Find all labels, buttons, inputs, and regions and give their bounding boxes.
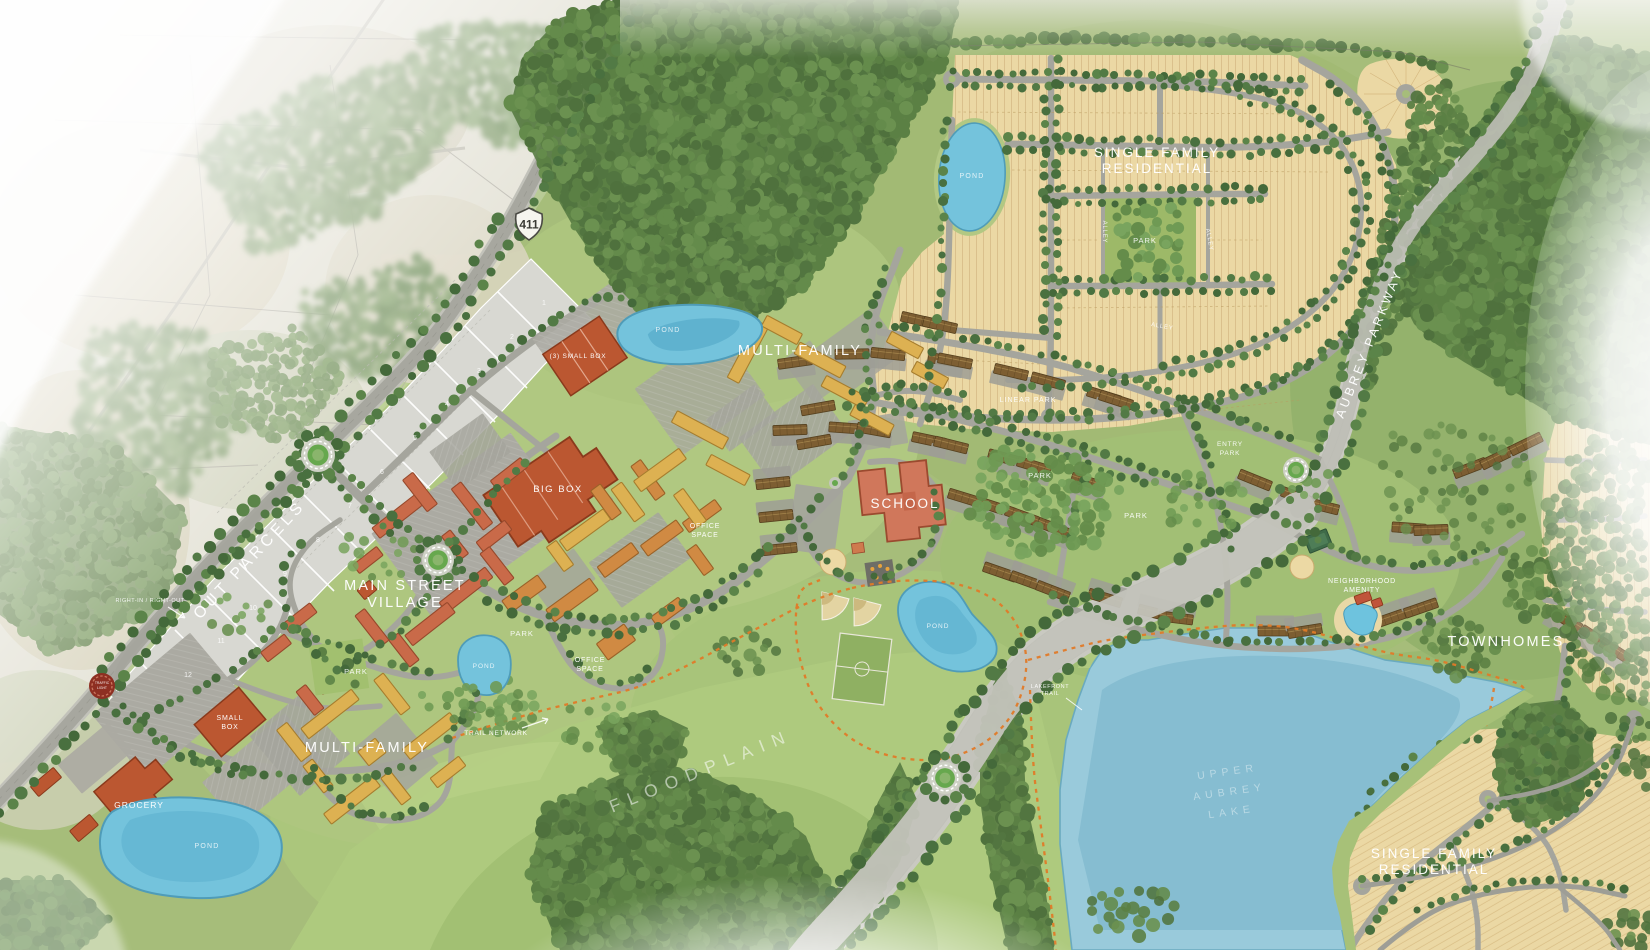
svg-text:RESIDENTIAL: RESIDENTIAL	[1102, 161, 1213, 176]
svg-text:BOX: BOX	[221, 724, 238, 731]
svg-text:OFFICE: OFFICE	[690, 523, 720, 530]
svg-text:AMENITY: AMENITY	[1344, 587, 1381, 594]
svg-text:5: 5	[413, 435, 417, 442]
svg-text:PARK: PARK	[510, 629, 534, 638]
svg-text:PARK: PARK	[344, 667, 368, 676]
svg-text:4: 4	[445, 401, 449, 408]
svg-text:1: 1	[542, 300, 546, 307]
svg-text:8: 8	[316, 537, 320, 544]
svg-text:POND: POND	[655, 327, 680, 334]
svg-text:POND: POND	[959, 173, 984, 180]
svg-text:ALLEY: ALLEY	[1101, 221, 1107, 244]
svg-text:MAIN STREET: MAIN STREET	[344, 578, 466, 594]
svg-text:6: 6	[380, 469, 384, 476]
svg-text:NEIGHBORHOOD: NEIGHBORHOOD	[1328, 578, 1396, 585]
svg-text:SINGLE FAMILY: SINGLE FAMILY	[1094, 145, 1220, 160]
svg-text:9: 9	[283, 571, 287, 578]
svg-text:10: 10	[249, 605, 257, 612]
svg-text:LAKEFRONT: LAKEFRONT	[1031, 684, 1069, 690]
svg-text:SCHOOL: SCHOOL	[870, 496, 939, 511]
svg-text:11: 11	[217, 638, 224, 645]
svg-text:TRAIL: TRAIL	[1041, 691, 1060, 697]
svg-text:POND: POND	[194, 843, 219, 850]
svg-text:POND: POND	[473, 663, 496, 670]
svg-text:SINGLE FAMILY: SINGLE FAMILY	[1371, 846, 1497, 861]
svg-text:TRAFFIC: TRAFFIC	[95, 681, 110, 685]
svg-text:PARK: PARK	[1220, 450, 1240, 457]
svg-text:12: 12	[184, 672, 192, 679]
svg-text:7: 7	[348, 503, 352, 510]
svg-text:RESIDENTIAL: RESIDENTIAL	[1379, 862, 1490, 877]
svg-text:SMALL: SMALL	[217, 715, 244, 722]
svg-text:POND: POND	[927, 623, 950, 630]
svg-text:MULTI-FAMILY: MULTI-FAMILY	[738, 343, 862, 359]
svg-text:ENTRY: ENTRY	[1217, 441, 1243, 448]
svg-text:LINEAR PARK: LINEAR PARK	[1000, 397, 1057, 404]
svg-text:2: 2	[510, 334, 514, 341]
svg-text:TOWNHOMES: TOWNHOMES	[1447, 634, 1564, 650]
svg-text:SPACE: SPACE	[691, 532, 718, 539]
svg-text:PARK: PARK	[1028, 471, 1052, 480]
svg-text:LIGHT: LIGHT	[97, 686, 107, 690]
svg-text:PARK: PARK	[1124, 511, 1148, 520]
svg-text:411: 411	[519, 218, 539, 232]
svg-text:GROCERY: GROCERY	[114, 800, 164, 810]
svg-text:SPACE: SPACE	[576, 666, 603, 673]
svg-text:VILLAGE: VILLAGE	[367, 595, 443, 611]
svg-text:MULTI-FAMILY: MULTI-FAMILY	[305, 740, 429, 756]
svg-text:PARK: PARK	[1133, 236, 1157, 245]
svg-text:RIGHT-IN / RIGHT-OUT: RIGHT-IN / RIGHT-OUT	[116, 598, 185, 604]
svg-text:OFFICE: OFFICE	[575, 657, 605, 664]
svg-text:3: 3	[477, 368, 481, 375]
svg-text:BIG BOX: BIG BOX	[533, 484, 583, 495]
svg-text:(3) SMALL BOX: (3) SMALL BOX	[550, 353, 607, 360]
svg-text:TRAIL NETWORK: TRAIL NETWORK	[464, 730, 528, 737]
